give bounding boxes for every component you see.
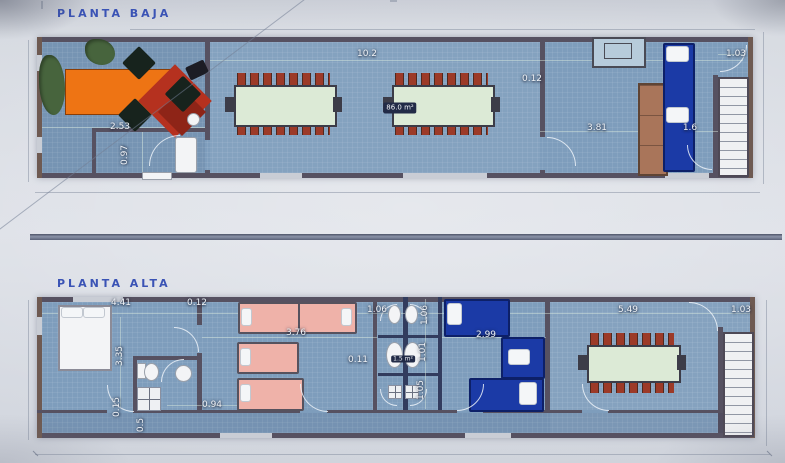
pillow: [666, 107, 689, 123]
outer-dimension-line: [35, 192, 760, 193]
plant: [85, 39, 115, 65]
dim-beds-room-length: 3.76: [286, 328, 306, 338]
planta-baja-plan: 86.0 m² 10.2 2.53 0.97 0.12 3.81 1.6 1.0…: [37, 37, 753, 178]
window-gap: [260, 173, 302, 178]
door-swing-arc: [380, 389, 397, 406]
shower-stall: [137, 387, 161, 411]
wall-partition: [540, 37, 545, 137]
door-swing-arc: [174, 327, 199, 352]
wall-partition: [205, 37, 210, 140]
dim-stair-width: 1.03: [731, 305, 751, 315]
staircase: [718, 77, 749, 177]
dimension-tick: [41, 1, 43, 9]
wall-bathroom: [133, 356, 197, 360]
table-end-seat: [491, 97, 500, 112]
bath-area-badge: 1.5 m²: [391, 356, 415, 363]
pillow: [508, 349, 530, 365]
dim-bathroom-width: 1.06: [367, 305, 387, 315]
wall-outer-bottom: [37, 433, 755, 438]
room-area-badge: 86.0 m²: [383, 103, 416, 114]
dimension-line: [142, 132, 143, 172]
planta-alta-plan: 1.5 m²: [37, 297, 755, 438]
chair-row: [395, 73, 488, 85]
dim-bathroom-mid-depth: 1.01: [418, 342, 428, 362]
door-swing-arc: [161, 359, 184, 382]
outer-dimension-line: [130, 29, 755, 30]
floorplan-photo: PLANTA BAJA PLANTA ALTA: [0, 0, 785, 463]
dim-dining-room-length: 5.49: [618, 305, 638, 315]
dim-bedroom-width: 4.41: [111, 298, 131, 308]
door-swing-arc: [149, 135, 180, 166]
pillow: [447, 303, 462, 325]
overall-dimension-line: [35, 454, 770, 455]
dim-partition-thickness: 0.12: [522, 74, 542, 84]
dim-wall-gap: 0.11: [348, 355, 368, 365]
dim-right-room-length: 3.81: [587, 123, 607, 133]
plant: [39, 55, 65, 115]
sideboard-inner: [604, 43, 632, 59]
round-fixture: [187, 113, 200, 126]
pillow: [241, 308, 252, 326]
chair-row: [590, 333, 674, 345]
window-gap: [465, 433, 511, 438]
toilet-bowl: [144, 363, 159, 381]
dimension-tick: [390, 0, 397, 2]
dim-bathroom-lower-depth: 1.05: [416, 380, 426, 400]
door-swing-arc: [300, 384, 328, 412]
table-end-seat: [578, 355, 587, 370]
outer-dimension-line: [28, 40, 29, 182]
dining-table: [587, 345, 681, 383]
wall-partition: [540, 170, 545, 178]
outer-dimension-line: [28, 300, 29, 440]
wall-outer-top: [37, 297, 755, 302]
pillow: [519, 382, 537, 405]
dim-overall-length: 10.2: [357, 49, 377, 59]
section-divider-bar: [30, 234, 782, 240]
dim-stair-width: 1.03: [726, 49, 746, 59]
wall-bathroom: [378, 335, 438, 338]
door-swing-arc: [582, 384, 609, 411]
dim-corridor-door-width: 0.94: [202, 400, 222, 410]
dim-bedroom-depth: 3.35: [115, 346, 125, 366]
wall-bathroom: [378, 373, 438, 376]
door-swing-arc: [689, 302, 718, 331]
plan-title-planta-baja: PLANTA BAJA: [57, 7, 171, 20]
dim-office-width: 2.53: [110, 122, 130, 132]
wall-partition: [205, 170, 210, 178]
outer-dimension-line: [766, 300, 767, 446]
table-end-seat: [333, 97, 342, 112]
plan-title-planta-alta: PLANTA ALTA: [57, 277, 171, 290]
window-gap: [220, 433, 272, 438]
window-gap: [403, 173, 487, 178]
outer-dimension-line: [763, 32, 764, 184]
meeting-table: [234, 85, 337, 127]
window-gap: [37, 137, 42, 153]
pillow: [240, 348, 251, 366]
dim-hall-width: 0.15: [112, 397, 122, 417]
chair-row: [237, 73, 330, 85]
window-gap: [665, 173, 709, 178]
staircase: [723, 332, 754, 437]
dim-wall-thickness: 0.12: [187, 298, 207, 308]
wall-office-corridor-side: [92, 128, 96, 173]
pillow: [341, 308, 352, 326]
dim-bathroom-depth: 1.06: [420, 305, 430, 325]
pillow: [61, 307, 83, 318]
door-swing-arc: [547, 137, 576, 166]
dim-corridor-width: 0.97: [120, 145, 130, 165]
window-gap: [37, 317, 42, 335]
table-end-seat: [225, 97, 234, 112]
table-end-seat: [677, 355, 686, 370]
dim-shower-width: 0.5: [136, 418, 146, 432]
pillow: [83, 307, 105, 318]
corridor-floor: [42, 413, 750, 433]
pillow: [240, 384, 251, 402]
dim-bed-alcove-width: 1.6: [683, 123, 697, 133]
dim-blue-room-length: 2.99: [476, 330, 496, 340]
pillow: [666, 46, 689, 62]
sideboard-table: [592, 37, 646, 68]
entry-door-panel: [142, 172, 172, 180]
